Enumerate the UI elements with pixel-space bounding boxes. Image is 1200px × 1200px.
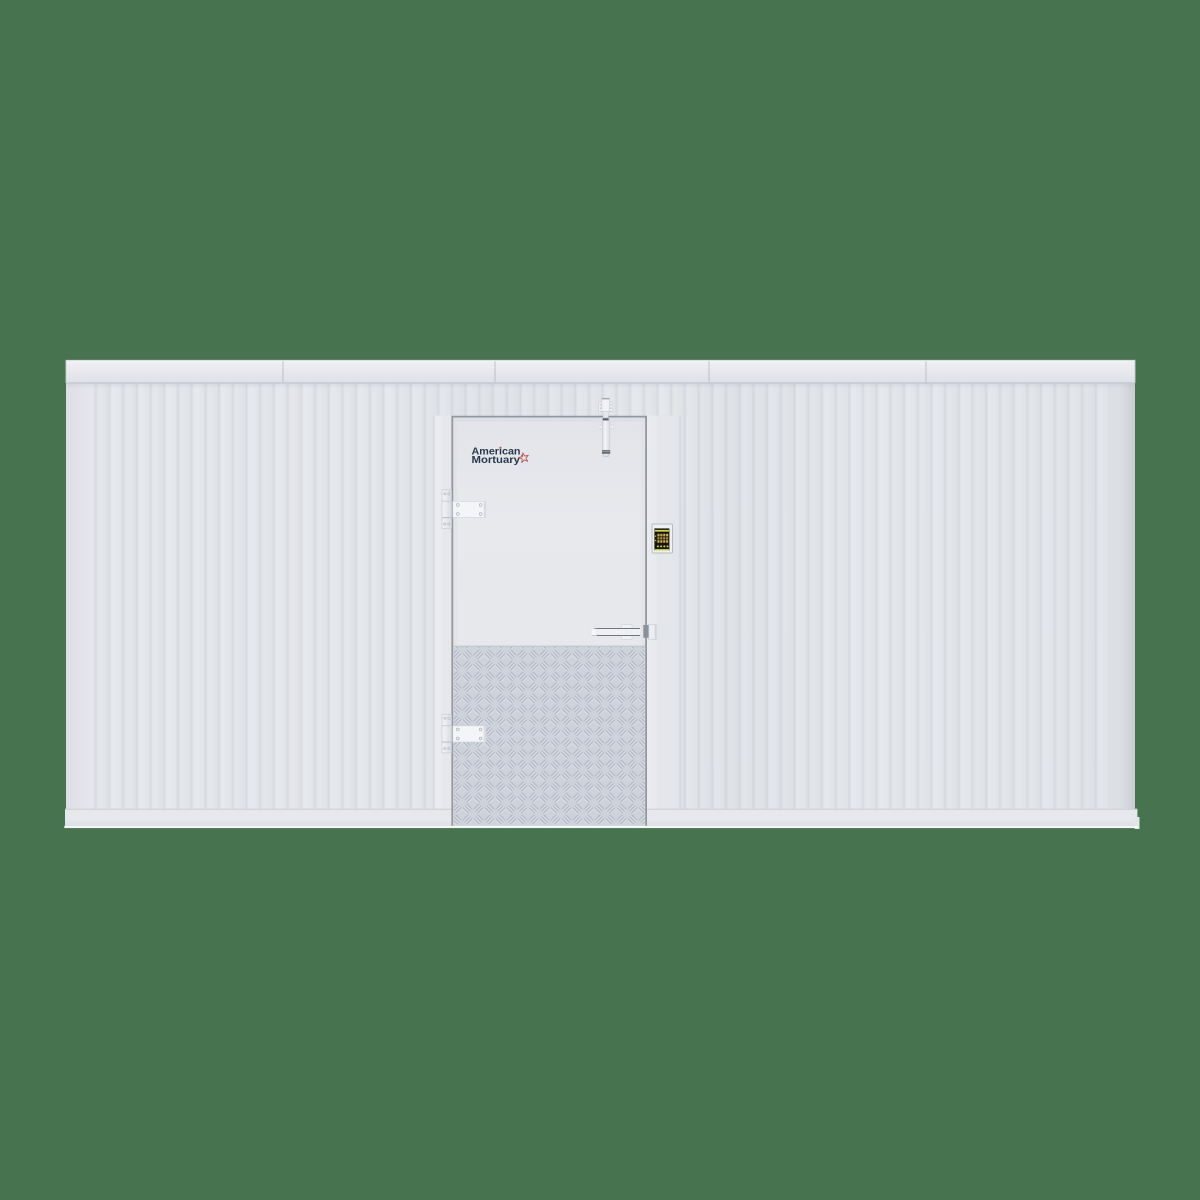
svg-text:Mortuary: Mortuary [472,455,521,466]
